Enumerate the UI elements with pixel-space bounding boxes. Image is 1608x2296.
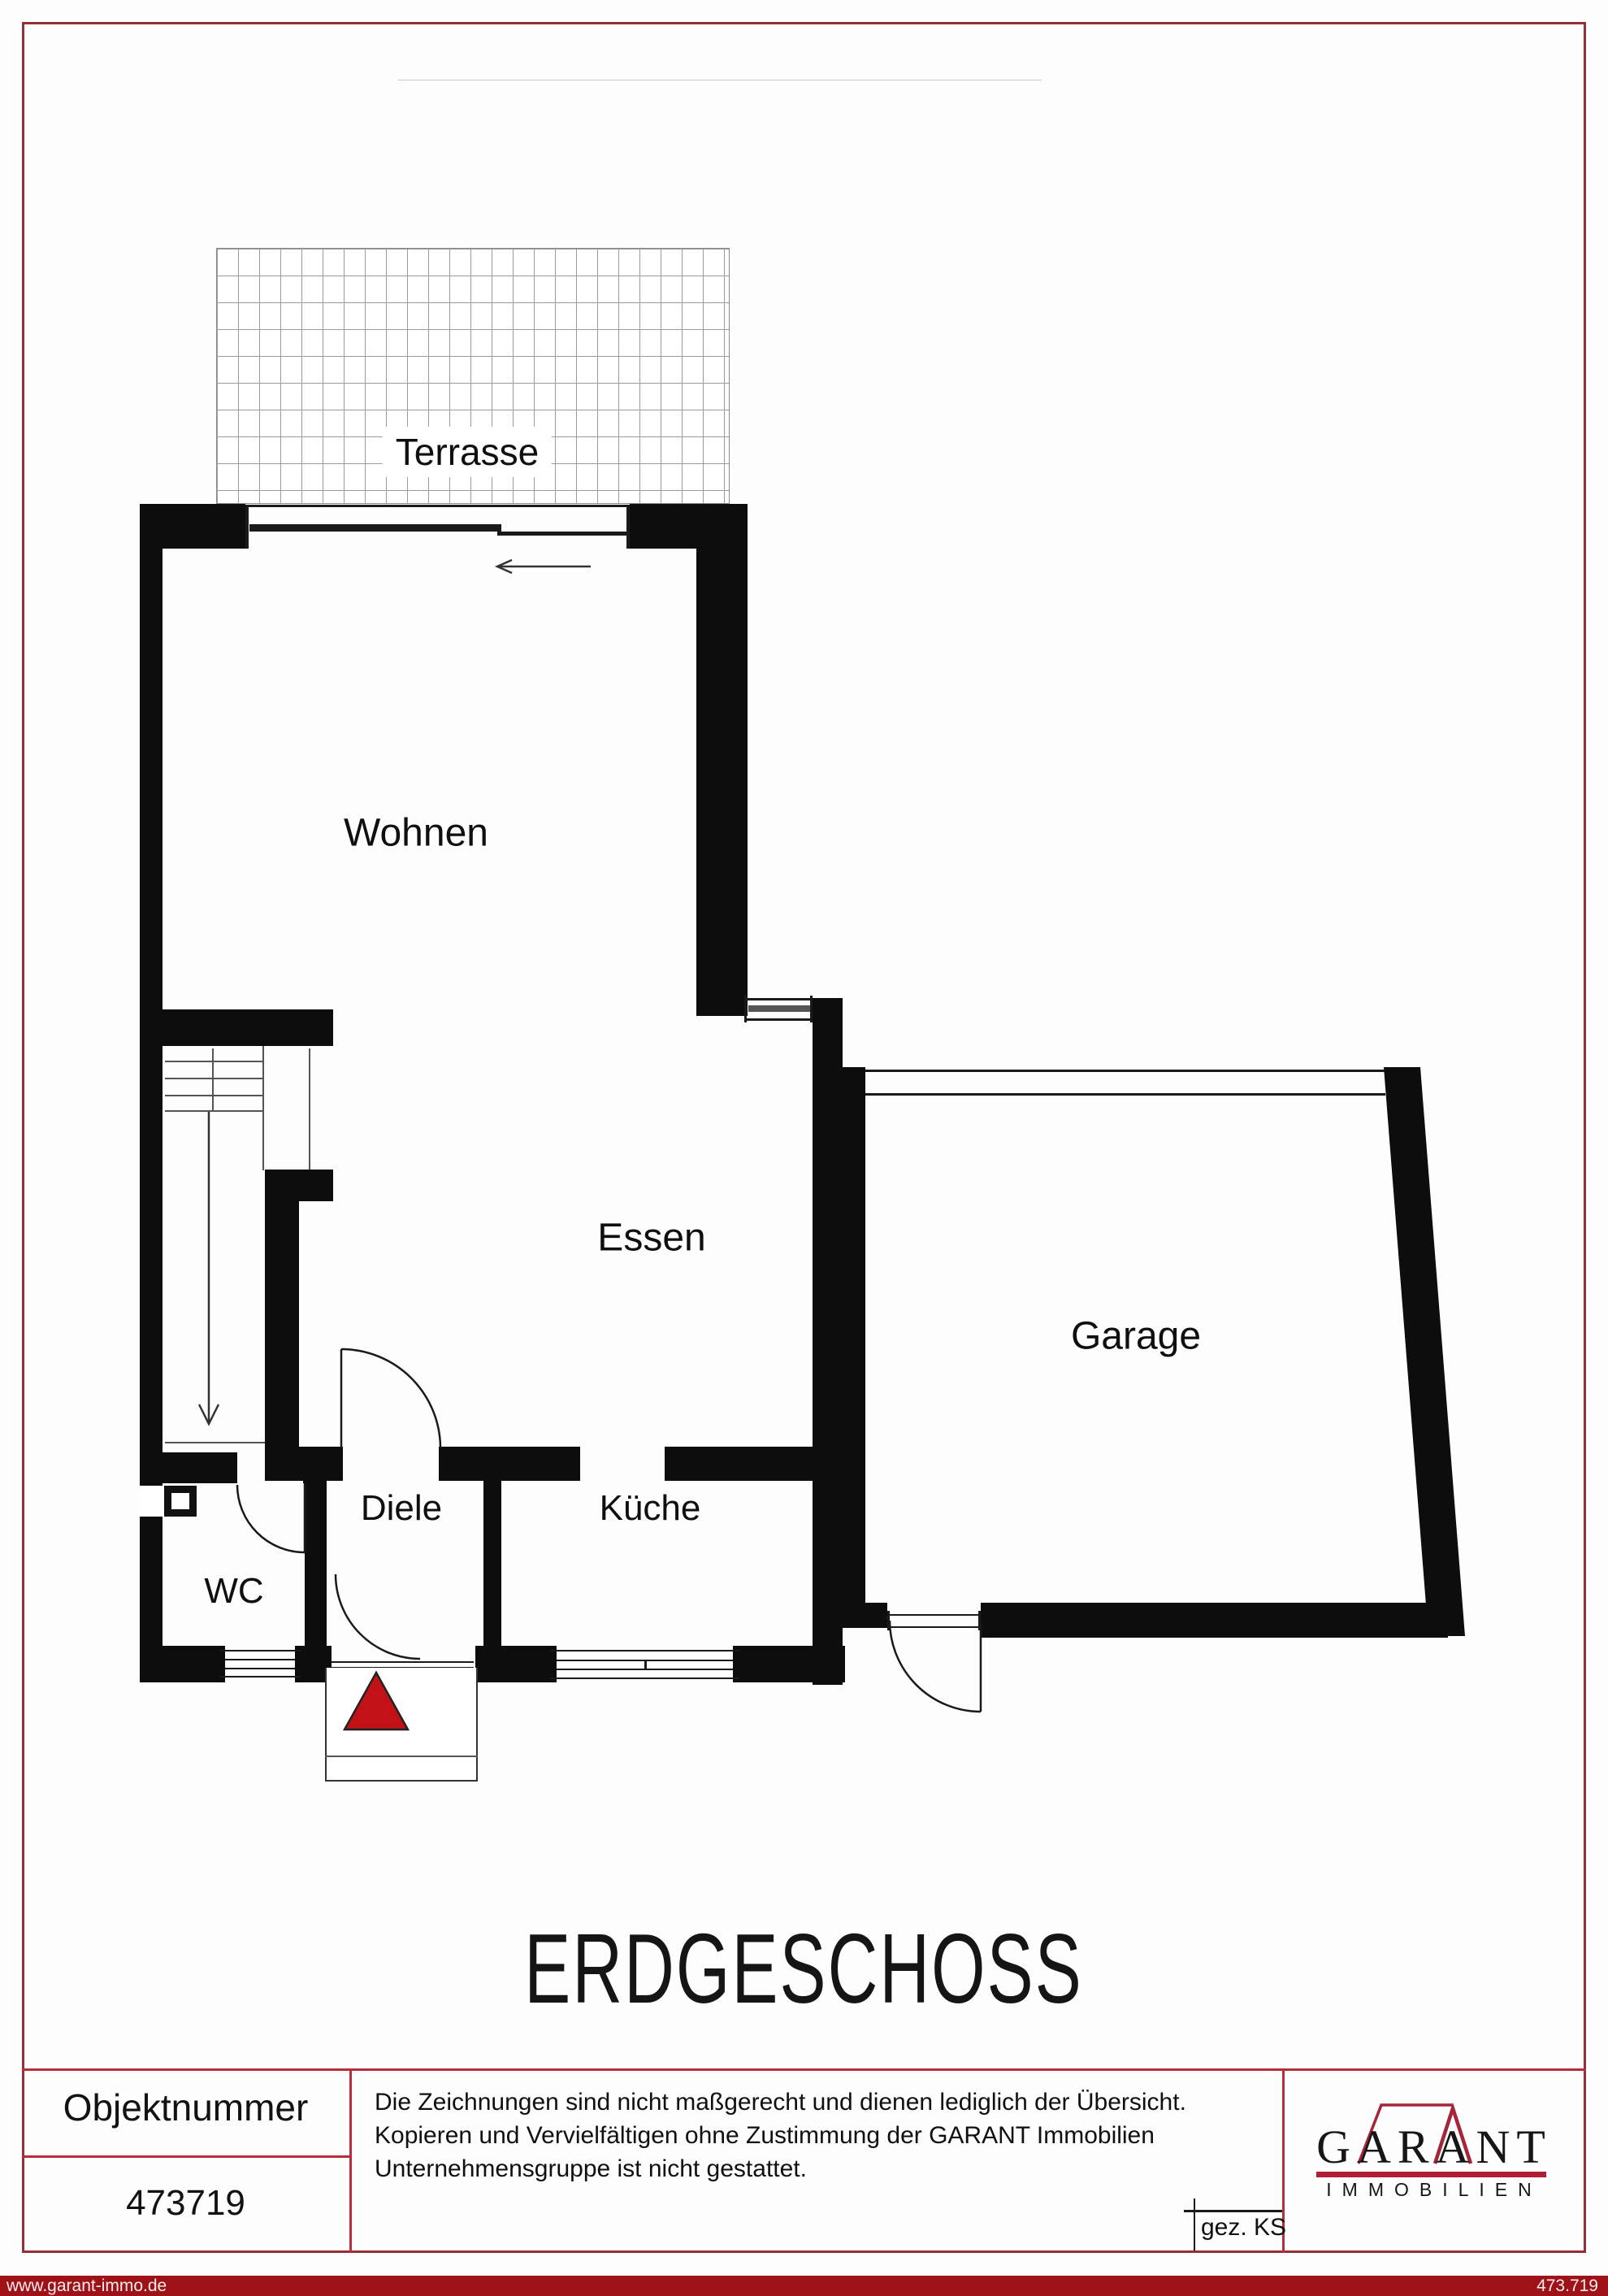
room-label-living: Wohnen [344,811,488,856]
drawn-by-line [1184,2210,1282,2212]
window-kitchen [550,1650,739,1651]
wall [163,1009,333,1046]
wall [733,1646,845,1682]
wall [665,1447,825,1481]
door-jamb [978,1611,981,1630]
scan-artifact-line [398,80,1042,80]
side-door-threshold [890,1614,981,1616]
window-wc-west [164,1486,197,1517]
stair-tread [165,1095,262,1096]
floor-title: ERDGESCHOSS [0,1912,1608,2025]
wall [843,1067,865,1604]
wall [439,1447,580,1481]
wall [475,1646,557,1682]
window-dining [746,1018,813,1021]
entrance-porch [325,1668,478,1782]
window-wc-west-opening [139,1486,163,1517]
porch-step-line [325,1756,478,1757]
room-label-terrace: Terrasse [383,427,552,477]
window-dining-glass [748,1005,810,1012]
window-wc-south [219,1676,301,1678]
disclaimer-line-1: Die Zeichnungen sind nicht maßgerecht un… [375,2085,1268,2119]
wall [140,1646,225,1682]
stair-flight-edge [309,1048,310,1170]
reference-number: 473.719 [1536,2276,1598,2296]
garage-door [865,1070,1385,1072]
room-label-hall: Diele [361,1488,442,1529]
wall [265,1170,299,1463]
wall [843,1603,887,1628]
side-door-threshold [890,1626,981,1628]
room-label-wc: WC [204,1571,263,1612]
stair-bottom-line [165,1442,265,1443]
disclaimer-line-2: Kopieren und Vervielfältigen ohne Zustim… [375,2119,1268,2152]
room-label-kitchen: Küche [600,1488,701,1529]
wall [981,1603,1448,1638]
drawn-by-line [1194,2198,1195,2250]
stair-landing-line [165,1110,262,1112]
stair-edge [262,1046,264,1170]
logo-brand: GARANT [1285,2120,1584,2174]
object-number-label: Objektnummer [22,2085,349,2129]
drawn-by-label: gez. KS [1201,2214,1286,2242]
entrance-threshold [332,1661,474,1663]
stair-flight-divider [212,1048,214,1112]
floorplan-page: Terrasse [0,0,1608,2296]
room-label-garage: Garage [1071,1314,1201,1359]
disclaimer-line-3: Unternehmensgruppe ist nicht gestattet. [375,2152,1268,2185]
window-wc-south [219,1650,301,1651]
window-wc-south [225,1659,295,1660]
garage-door [865,1093,1385,1096]
terrace-door-jamb [245,505,249,549]
wall [813,998,843,1685]
terrace-door-frame [245,505,630,507]
terrace-door-jamb [626,505,630,549]
wall [696,504,748,1016]
door-jamb [887,1611,890,1630]
logo-subtitle: IMMOBILIEN [1285,2179,1584,2201]
window-wc-south [225,1668,295,1669]
logo-divider [1316,2172,1546,2177]
sliding-door-panel [249,524,501,532]
window-kitchen [550,1678,739,1679]
object-number-value: 473719 [22,2183,349,2224]
table-line [349,2068,352,2253]
table-line [22,2155,352,2158]
room-label-dining: Essen [597,1216,705,1261]
wall [160,1452,237,1483]
table-line [22,2068,1586,2071]
website-text: www.garant-immo.de [7,2276,167,2296]
stair-tread [165,1061,262,1062]
window-jamb [810,996,813,1022]
bottom-bar: www.garant-immo.de 473.719 [0,2276,1608,2296]
window-dining [746,998,813,1000]
window-kitchen-mullion [644,1660,647,1670]
window-jamb [744,996,747,1022]
sliding-door-panel [497,532,627,536]
wall [265,1170,333,1201]
stair-tread [165,1078,262,1079]
